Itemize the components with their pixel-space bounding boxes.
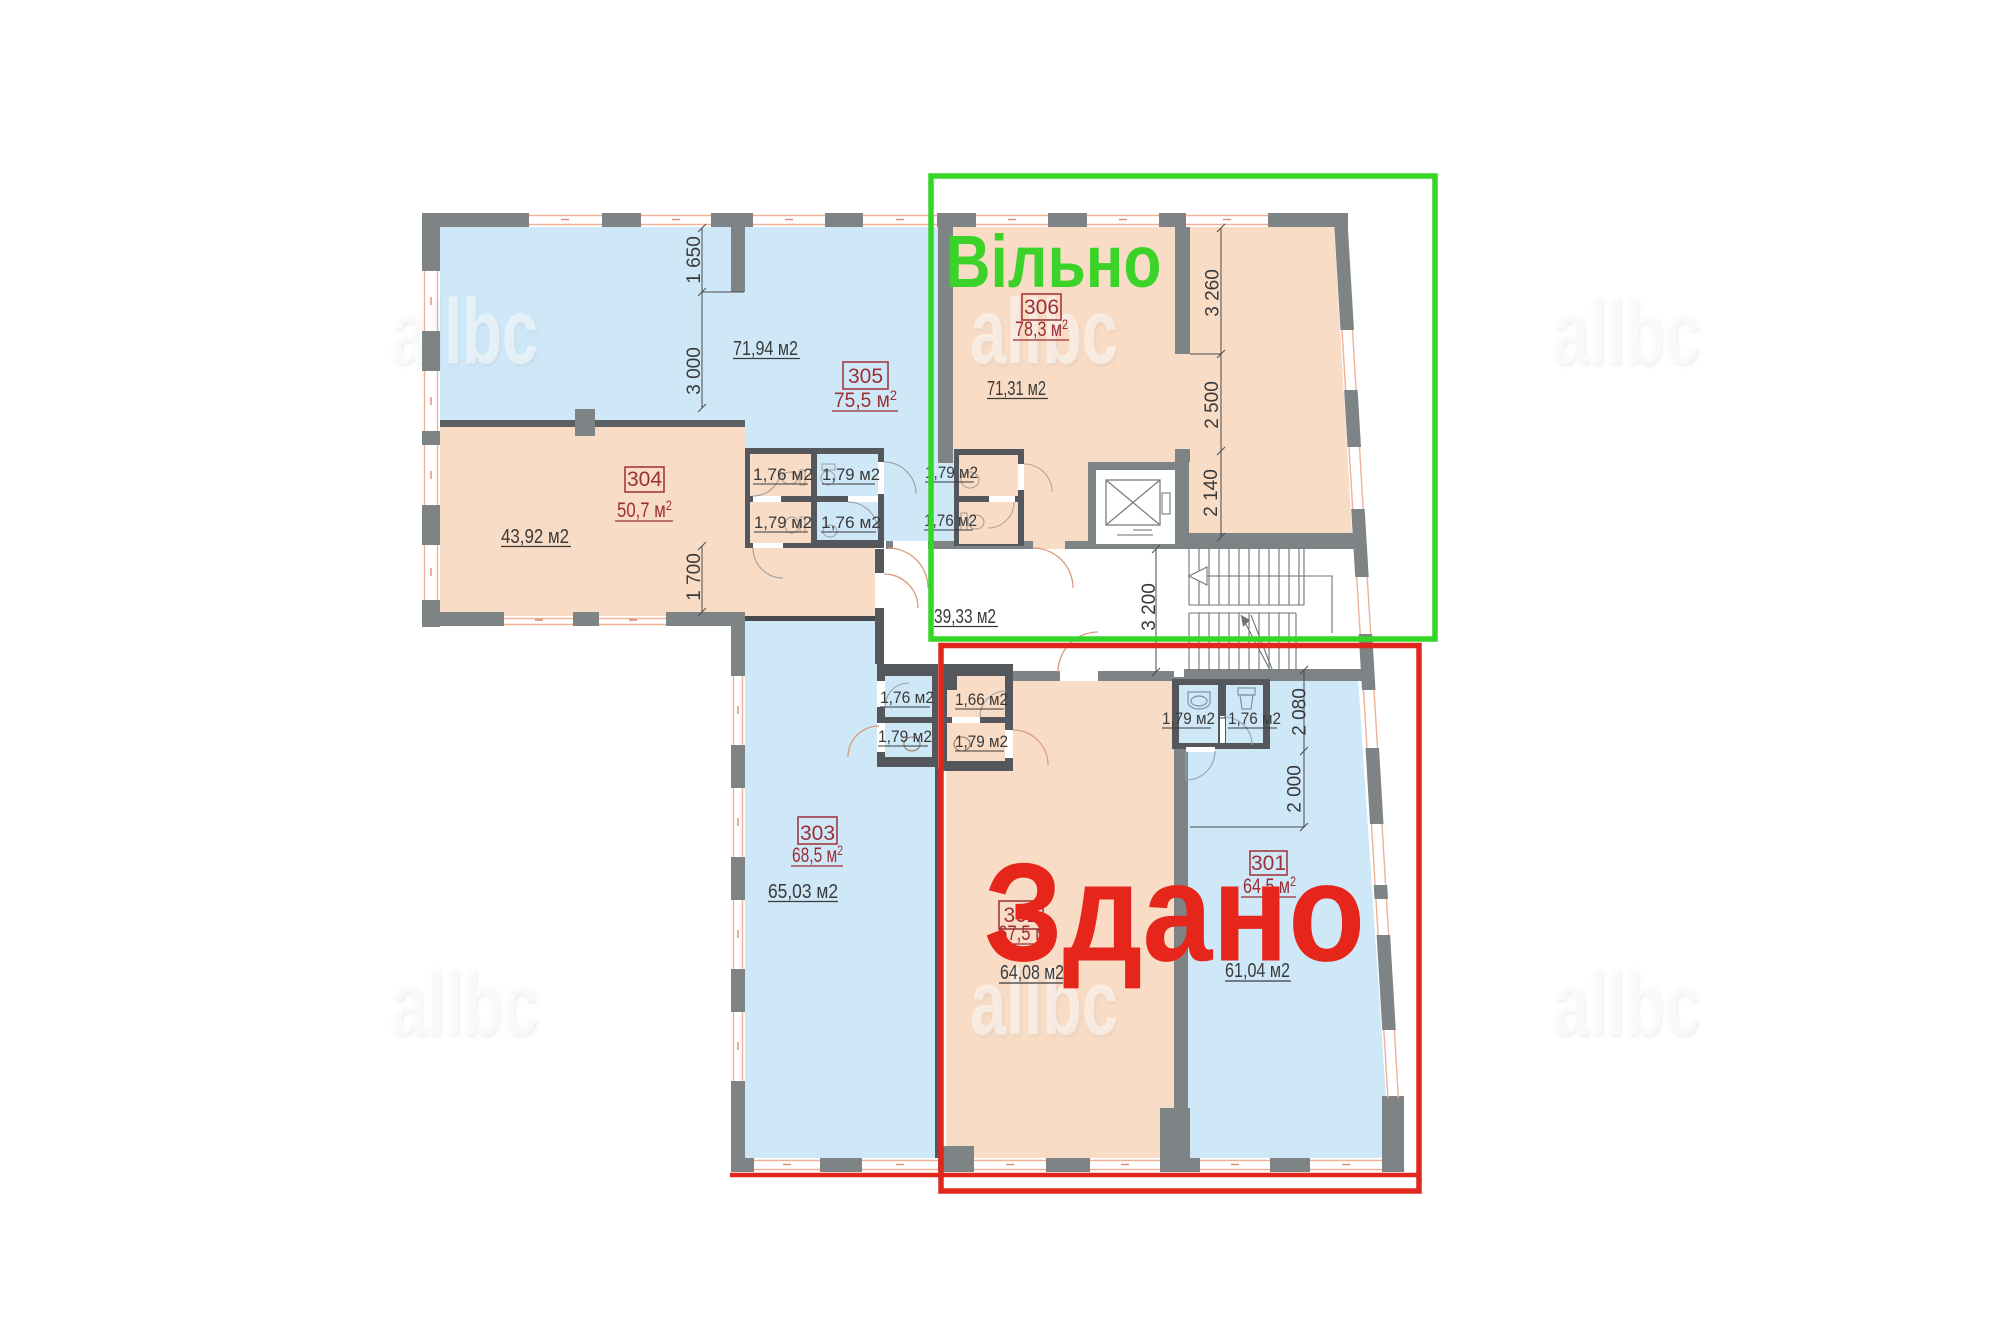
svg-text:Вільно: Вільно [946,220,1162,303]
svg-text:1,76 м2: 1,76 м2 [1228,710,1281,728]
svg-text:1 700: 1 700 [684,553,705,601]
svg-text:68,5 м2: 68,5 м2 [792,842,843,867]
svg-text:1,66 м2: 1,66 м2 [955,691,1008,709]
svg-text:78,3 м2: 78,3 м2 [1015,316,1068,341]
svg-text:allbc: allbc [390,281,538,383]
svg-text:71,31 м2: 71,31 м2 [987,378,1046,400]
svg-text:39,33 м2: 39,33 м2 [934,606,996,628]
svg-text:2 080: 2 080 [1290,688,1311,736]
svg-text:303: 303 [800,822,835,845]
svg-text:2 500: 2 500 [1202,381,1223,429]
svg-text:allbc: allbc [1552,952,1700,1054]
svg-text:1,76 м2: 1,76 м2 [821,514,881,532]
svg-text:1,79 м2: 1,79 м2 [955,733,1008,751]
svg-text:75,5 м2: 75,5 м2 [834,387,897,412]
svg-text:1 650: 1 650 [684,236,705,284]
svg-text:50,7 м2: 50,7 м2 [617,497,672,522]
svg-text:1,79 м2: 1,79 м2 [754,514,812,532]
svg-text:allbc: allbc [390,952,538,1054]
svg-text:1,79 м2: 1,79 м2 [822,466,880,484]
svg-text:3 200: 3 200 [1139,583,1160,631]
svg-text:304: 304 [627,468,662,491]
svg-text:1,76 м2: 1,76 м2 [880,689,934,707]
svg-text:3 000: 3 000 [684,347,705,395]
svg-text:305: 305 [848,365,883,388]
svg-text:1,79 м2: 1,79 м2 [1162,710,1215,728]
svg-text:3 260: 3 260 [1203,269,1224,317]
svg-text:43,92 м2: 43,92 м2 [501,526,569,548]
svg-text:71,94 м2: 71,94 м2 [733,338,798,360]
svg-text:65,03 м2: 65,03 м2 [768,881,838,903]
svg-text:2 000: 2 000 [1285,765,1306,813]
svg-text:1,76 м2: 1,76 м2 [753,466,813,484]
svg-text:Здано: Здано [984,834,1365,991]
svg-text:2 140: 2 140 [1201,469,1222,517]
svg-text:allbc: allbc [1552,281,1700,383]
svg-text:1,79 м2: 1,79 м2 [878,728,932,746]
